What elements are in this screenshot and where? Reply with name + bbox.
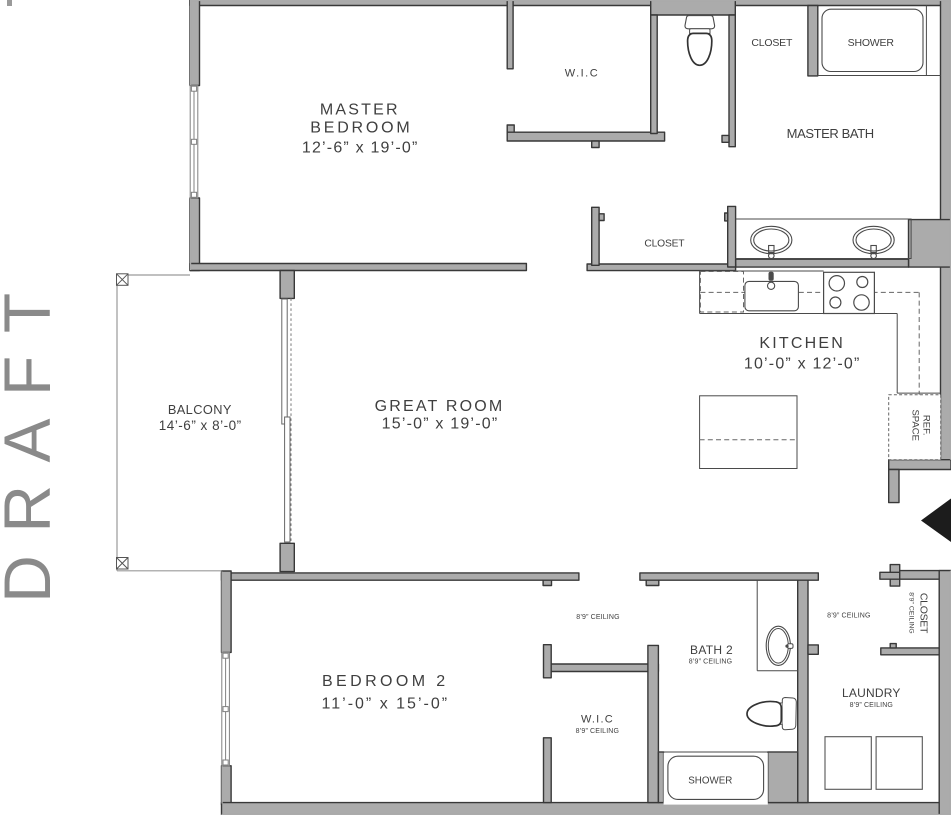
svg-text:8’9” CEILING: 8’9” CEILING: [576, 614, 619, 621]
svg-text:REF.: REF.: [921, 415, 932, 436]
svg-text:CLOSET: CLOSET: [644, 238, 685, 249]
svg-text:W.I.C: W.I.C: [581, 714, 614, 726]
svg-text:LAUNDRY: LAUNDRY: [842, 686, 901, 700]
svg-text:8’9” CEILING: 8’9” CEILING: [827, 613, 870, 620]
svg-text:SHOWER: SHOWER: [688, 776, 732, 787]
svg-text:15’-0” x 19’-0”: 15’-0” x 19’-0”: [382, 416, 499, 433]
svg-text:12’-6” x 19’-0”: 12’-6” x 19’-0”: [302, 139, 419, 156]
svg-text:DRAFT: DRAFT: [0, 270, 64, 602]
svg-text:BEDROOM: BEDROOM: [310, 120, 412, 137]
svg-text:CLOSET: CLOSET: [918, 593, 930, 634]
svg-text:8’9” CEILING: 8’9” CEILING: [576, 728, 619, 735]
svg-text:11’-0” x 15’-0”: 11’-0” x 15’-0”: [322, 695, 450, 712]
svg-text:8’9” CEILING: 8’9” CEILING: [850, 702, 893, 709]
svg-text:8’9” CEILING: 8’9” CEILING: [689, 658, 732, 665]
svg-text:10’-0” x 12’-0”: 10’-0” x 12’-0”: [744, 356, 861, 373]
svg-text:BEDROOM 2: BEDROOM 2: [322, 673, 449, 690]
svg-text:W.I.C: W.I.C: [565, 67, 599, 79]
svg-text:MASTER: MASTER: [320, 101, 400, 118]
svg-text:MASTER BATH: MASTER BATH: [787, 126, 874, 141]
svg-text:14’-6” x 8’-0”: 14’-6” x 8’-0”: [159, 418, 242, 433]
svg-text:BATH 2: BATH 2: [690, 643, 733, 657]
svg-text:8’9” CEILING: 8’9” CEILING: [908, 592, 915, 634]
svg-text:BALCONY: BALCONY: [168, 402, 232, 417]
svg-text:CLOSET: CLOSET: [751, 37, 793, 49]
svg-text:SHOWER: SHOWER: [848, 37, 895, 49]
svg-text:GREAT ROOM: GREAT ROOM: [375, 398, 505, 415]
svg-text:KITCHEN: KITCHEN: [759, 335, 845, 352]
svg-text:SPACE: SPACE: [910, 409, 921, 441]
